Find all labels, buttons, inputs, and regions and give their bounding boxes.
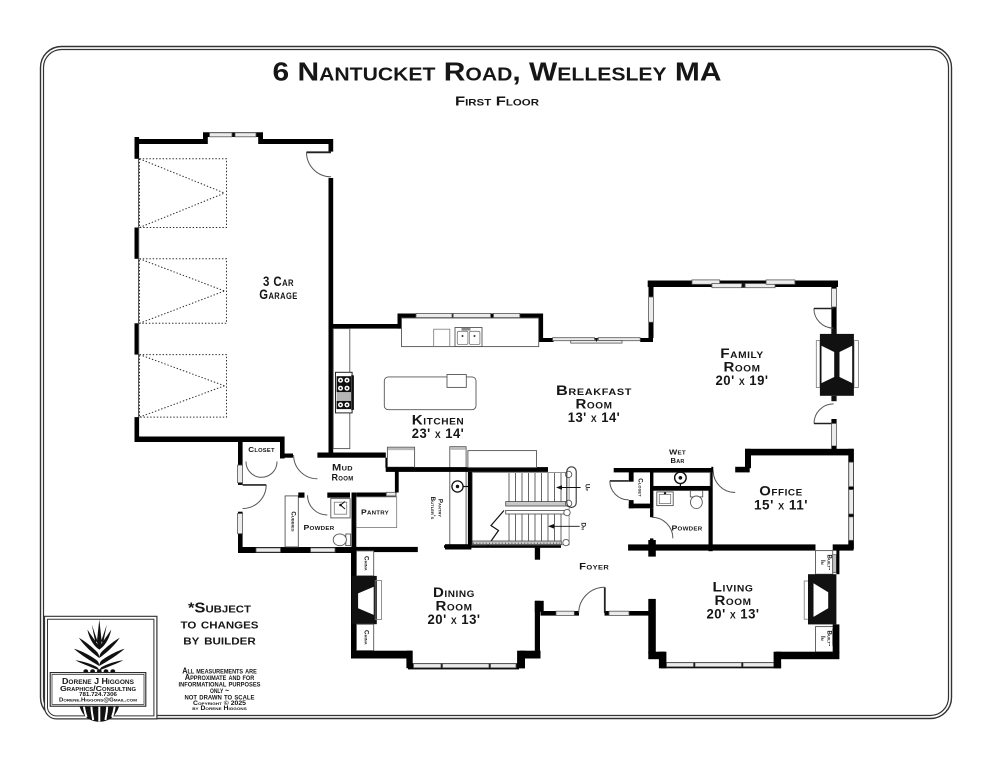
svg-text:23' x 14': 23' x 14' xyxy=(412,426,465,441)
svg-text:China: China xyxy=(362,630,369,645)
svg-text:13' x 14': 13' x 14' xyxy=(568,410,621,425)
svg-text:Office: Office xyxy=(759,484,803,499)
svg-text:20' x 13': 20' x 13' xyxy=(428,612,481,627)
svg-text:Foyer: Foyer xyxy=(579,562,609,572)
svg-text:Up: Up xyxy=(584,484,591,492)
svg-text:Pantry: Pantry xyxy=(361,510,390,517)
svg-text:In: In xyxy=(819,560,826,565)
svg-text:Powder: Powder xyxy=(672,526,703,533)
svg-text:Dn: Dn xyxy=(579,523,586,531)
svg-text:Closet: Closet xyxy=(248,447,275,454)
svg-text:Butler's: Butler's xyxy=(429,497,436,520)
svg-text:*Subject: *Subject xyxy=(188,601,251,617)
svg-text:6 Nantucket Road, Wellesley MA: 6 Nantucket Road, Wellesley MA xyxy=(273,59,722,87)
svg-text:Room: Room xyxy=(332,473,354,483)
svg-text:Bar: Bar xyxy=(671,458,685,465)
svg-text:Wet: Wet xyxy=(669,450,686,457)
svg-text:20' x 19': 20' x 19' xyxy=(716,373,769,388)
svg-text:China: China xyxy=(362,556,369,571)
svg-text:Closet: Closet xyxy=(637,478,644,497)
svg-text:by Dorene Higgons: by Dorene Higgons xyxy=(192,706,247,712)
svg-text:Dorene.Higgons@Gmail.com: Dorene.Higgons@Gmail.com xyxy=(59,698,138,704)
svg-text:Powder: Powder xyxy=(304,525,335,532)
svg-text:Pantry: Pantry xyxy=(437,499,444,518)
svg-text:to changes: to changes xyxy=(181,617,259,633)
svg-text:In: In xyxy=(819,636,826,641)
svg-text:Cubbies: Cubbies xyxy=(290,511,297,532)
svg-text:by builder: by builder xyxy=(183,633,256,649)
svg-text:First Floor: First Floor xyxy=(455,94,540,109)
svg-text:Garage: Garage xyxy=(259,287,298,302)
svg-text:15' x 11': 15' x 11' xyxy=(754,498,808,513)
svg-text:Mud: Mud xyxy=(332,463,353,473)
svg-text:20' x 13': 20' x 13' xyxy=(707,607,760,622)
